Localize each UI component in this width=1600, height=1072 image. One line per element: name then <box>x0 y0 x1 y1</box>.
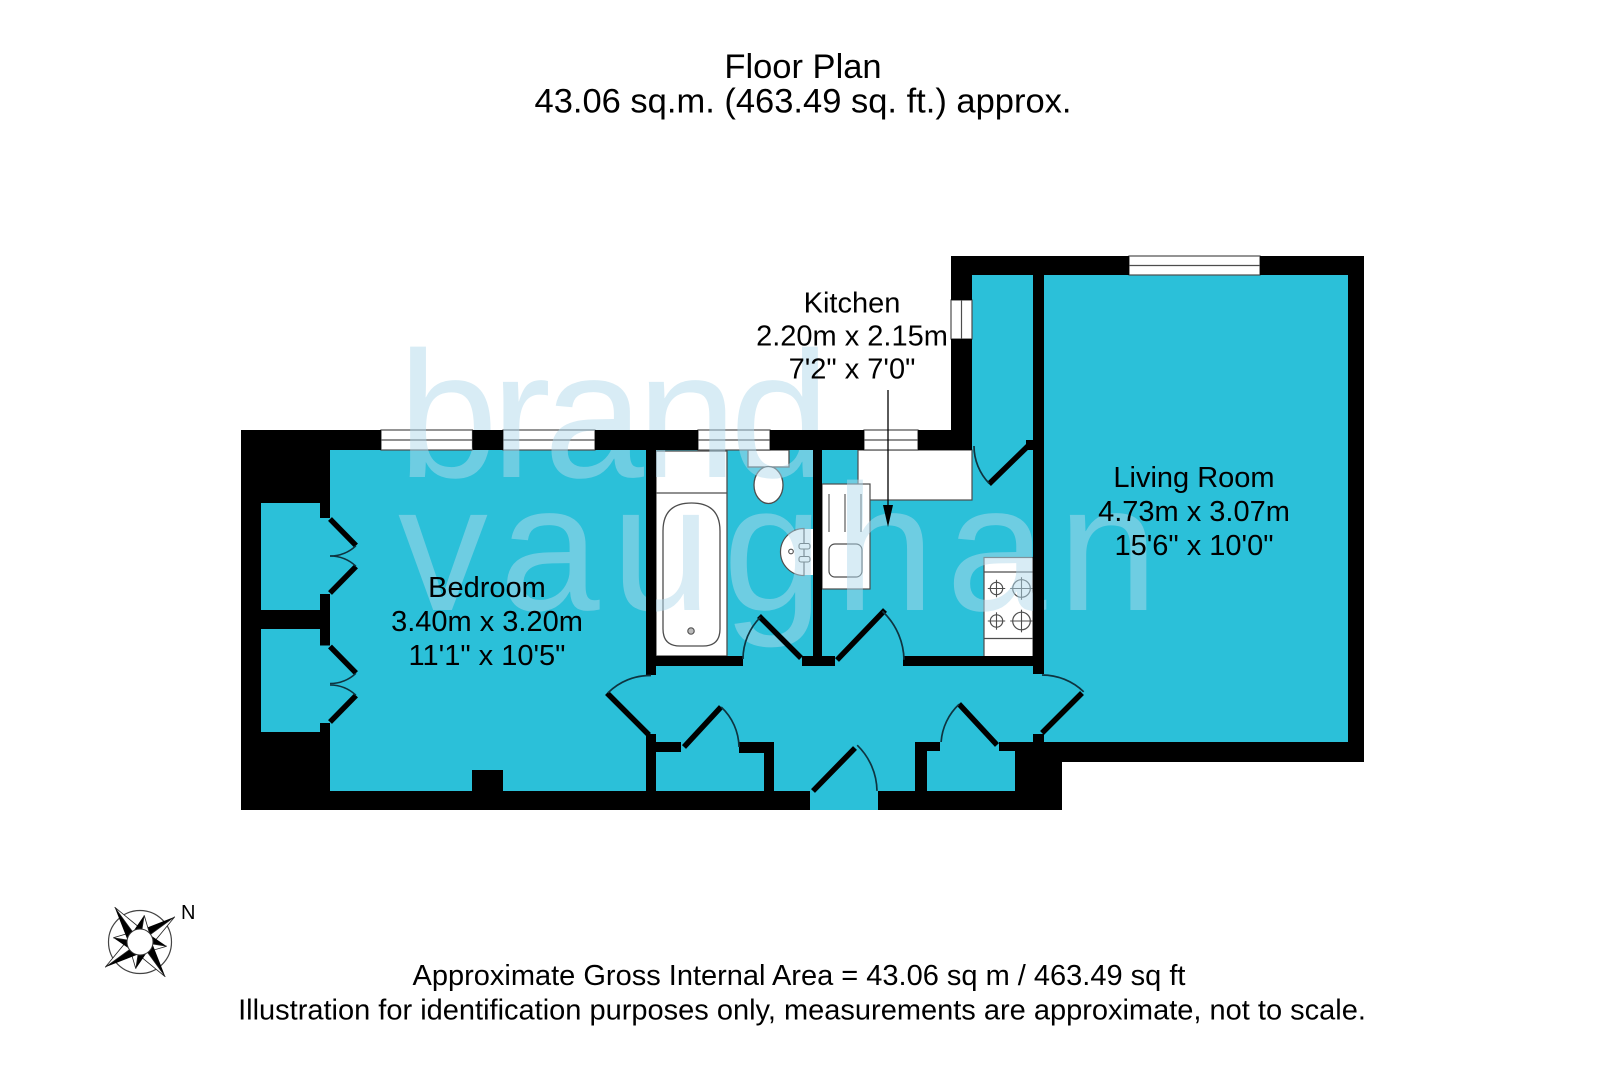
svg-text:43.06 sq.m. (463.49 sq. ft.) a: 43.06 sq.m. (463.49 sq. ft.) approx. <box>535 83 1072 121</box>
svg-text:11'1" x 10'5": 11'1" x 10'5" <box>409 640 566 672</box>
svg-text:2.20m x 2.15m: 2.20m x 2.15m <box>756 321 948 353</box>
svg-text:Living Room: Living Room <box>1113 462 1274 494</box>
svg-text:Kitchen: Kitchen <box>804 288 901 320</box>
svg-text:N: N <box>181 902 195 924</box>
svg-text:Bedroom: Bedroom <box>428 572 546 604</box>
svg-text:3.40m x 3.20m: 3.40m x 3.20m <box>391 606 583 638</box>
svg-text:Approximate Gross Internal Are: Approximate Gross Internal Area = 43.06 … <box>413 960 1186 992</box>
svg-text:15'6" x 10'0": 15'6" x 10'0" <box>1114 530 1273 562</box>
svg-text:7'2" x 7'0": 7'2" x 7'0" <box>789 354 916 386</box>
svg-text:Illustration for identificatio: Illustration for identification purposes… <box>238 995 1366 1027</box>
svg-text:4.73m x 3.07m: 4.73m x 3.07m <box>1098 496 1290 528</box>
svg-text:Floor Plan: Floor Plan <box>724 48 881 86</box>
